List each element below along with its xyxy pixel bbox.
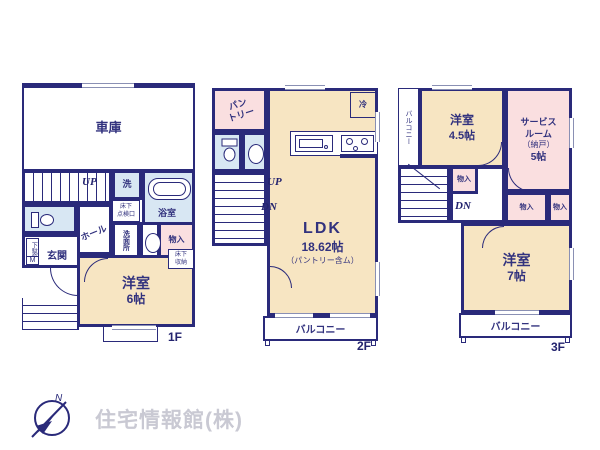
- balcony-2f-label: バルコニー: [296, 321, 346, 336]
- shoe-cabinet-m: M: [26, 256, 39, 265]
- underfloor-storage-box: 床下 収納: [168, 249, 194, 269]
- sink-basin-icon: [299, 139, 323, 148]
- underfloor-label-2: 収納: [175, 259, 187, 267]
- stairs-up-label-2f: UP: [267, 176, 282, 188]
- bedroom-7-size: 7帖: [507, 269, 526, 285]
- stairs-dn-label-2f: DN: [261, 201, 277, 213]
- garage-room: 車庫: [22, 83, 195, 173]
- pantry-room: パン トリー: [212, 88, 267, 132]
- washroom-1f: 洗面所: [112, 222, 140, 258]
- bedroom-45-label: 洋室: [450, 113, 474, 129]
- fridge-label: 冷: [359, 100, 367, 110]
- bedroom-7-bottom-window: [495, 310, 539, 315]
- inspection-label-2: 点検口: [117, 211, 135, 219]
- underfloor-label-1: 床下: [175, 251, 187, 259]
- garage-label: 車庫: [95, 120, 121, 137]
- garage-door-opening: [82, 83, 134, 88]
- stairs-1f: [22, 170, 112, 204]
- pantry-label: パン トリー: [223, 96, 255, 125]
- company-name-label: 住宅情報館(株): [95, 404, 243, 434]
- floor3-tag: 3F: [551, 340, 565, 354]
- balcony-2f: バルコニー: [263, 316, 378, 341]
- balcony-foot: [371, 340, 376, 346]
- burner-icon: [346, 138, 353, 145]
- bath-label: 浴室: [158, 206, 176, 219]
- burner-icon: [361, 138, 368, 145]
- bedroom-45-size: 4.5帖: [449, 129, 475, 143]
- washbasin-icon: [145, 233, 161, 253]
- stairs-3f: [398, 166, 450, 223]
- entrance-door-arc: [50, 268, 78, 296]
- fridge-space: 冷: [350, 92, 376, 118]
- bathtub-inner-icon: [153, 182, 186, 196]
- bedroom-7-label: 洋室: [503, 251, 531, 269]
- vanity-space: [140, 222, 160, 258]
- faucet-icon: [324, 145, 328, 149]
- washroom-label: 洗面所: [121, 230, 130, 251]
- washer-space: 洗: [112, 170, 142, 200]
- entrance-approach-steps: [22, 298, 78, 330]
- stove-icon: [341, 135, 374, 152]
- toilet-bowl-icon: [40, 214, 54, 226]
- service-right-window: [569, 118, 574, 148]
- entrance-room: 下駄箱 M 玄関: [22, 234, 80, 268]
- approach-side-line: [78, 268, 79, 330]
- balcony-foot: [565, 337, 570, 343]
- vanity-room-2f: [242, 132, 267, 172]
- kitchen-counter: [290, 131, 378, 156]
- balcony-foot: [265, 340, 270, 346]
- closet-3f-a-label: 物入: [457, 175, 471, 184]
- ldk-right-window-upper: [375, 112, 380, 142]
- toilet-bowl-icon-2f: [224, 148, 236, 162]
- toilet-icon-2f: [222, 139, 238, 162]
- washer-label: 洗: [122, 179, 131, 191]
- kitchen-wall-stub: [340, 154, 378, 158]
- balcony-3f: バルコニー: [459, 313, 572, 338]
- closet-3f-b-label: 物入: [520, 203, 534, 212]
- toilet-tank-icon-2f: [222, 139, 238, 147]
- closet-3f-c-label: 物入: [553, 203, 567, 212]
- floor2-tag: 2F: [357, 339, 371, 353]
- bedroom-45-top-window: [432, 85, 472, 90]
- toilet-room-1f: [22, 204, 77, 234]
- bathtub-icon: [148, 178, 191, 200]
- balcony-3f-side-label: バルコニー: [404, 110, 413, 145]
- ldk-size-label: 18.62帖: [301, 240, 343, 256]
- inspection-label-1: 床下: [120, 203, 132, 211]
- toilet-room-2f: [212, 132, 242, 172]
- bedroom-1f-size: 6帖: [127, 292, 146, 308]
- ldk-bottom-window-left: [275, 313, 313, 318]
- toilet-icon: [31, 212, 54, 228]
- ldk-note-label: （パントリー含ム）: [286, 256, 358, 266]
- bedroom-1f-window: [112, 325, 156, 330]
- compass-bird-icon: N: [26, 390, 78, 444]
- bathroom-1f: 浴室: [142, 170, 195, 226]
- balcony-3f-label: バルコニー: [491, 318, 541, 333]
- closet-1f-label: 物入: [169, 235, 185, 245]
- ldk-label: LDK: [303, 219, 342, 240]
- service-room-label-1: サービス: [520, 116, 556, 128]
- ldk-label-block: LDK 18.62帖 （パントリー含ム）: [267, 215, 378, 270]
- burner-icon: [353, 146, 358, 151]
- stairs-dn-label-3f: DN: [455, 200, 471, 212]
- bedroom-7-room: 洋室 7帖: [461, 223, 572, 313]
- balcony-foot: [461, 337, 466, 343]
- service-room-label-2: ルーム: [525, 128, 552, 140]
- bedroom-7-right-window: [569, 248, 574, 280]
- service-room-label-3: （納戸）: [523, 140, 555, 151]
- kitchen-sink-icon: [295, 135, 333, 152]
- toilet-tank-icon: [31, 212, 39, 228]
- ldk-bottom-window-right: [330, 313, 370, 318]
- shoe-cabinet-m-label: M: [30, 256, 36, 265]
- service-room-label-4: 5帖: [531, 151, 547, 165]
- north-mark-label: N: [55, 393, 63, 404]
- closet-3f-a: 物入: [450, 166, 478, 194]
- stairs-up-label-1f: UP: [82, 176, 97, 188]
- closet-3f-b: 物入: [505, 192, 548, 223]
- ldk-top-window: [285, 85, 325, 90]
- balcony-3f-side: バルコニー: [398, 88, 419, 166]
- bedroom-1f-label: 洋室: [122, 274, 150, 292]
- underfloor-inspection-box: 床下 点検口: [112, 200, 140, 222]
- floorplan-canvas: 車庫 UP 下駄箱 M 玄関 ホール 洗: [0, 0, 600, 450]
- floor1-tag: 1F: [168, 330, 182, 344]
- washbasin-icon-2f: [248, 144, 264, 164]
- entrance-label: 玄関: [47, 247, 67, 262]
- closet-3f-c: 物入: [548, 192, 572, 223]
- stairs-2f: [212, 172, 267, 246]
